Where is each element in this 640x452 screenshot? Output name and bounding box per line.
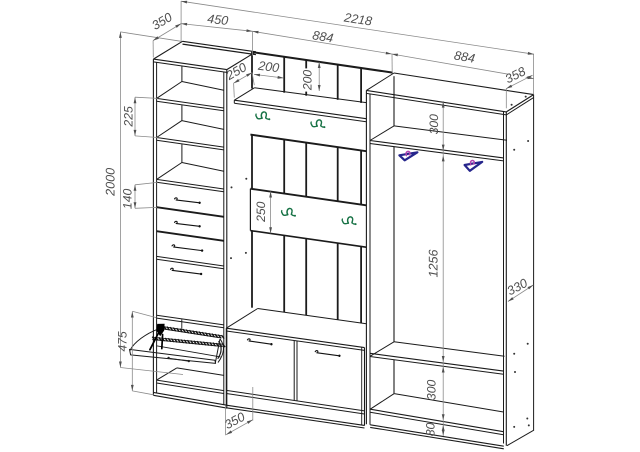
svg-text:450: 450 xyxy=(207,12,229,28)
svg-text:200: 200 xyxy=(256,59,280,76)
svg-text:2000: 2000 xyxy=(104,168,118,197)
svg-text:200: 200 xyxy=(301,70,315,92)
svg-text:225: 225 xyxy=(122,106,136,128)
svg-text:140: 140 xyxy=(121,189,135,210)
svg-text:80: 80 xyxy=(424,423,438,437)
svg-text:475: 475 xyxy=(115,331,129,352)
svg-text:250: 250 xyxy=(254,201,268,223)
svg-text:300: 300 xyxy=(425,380,439,401)
svg-text:1256: 1256 xyxy=(427,249,441,277)
svg-text:300: 300 xyxy=(427,114,441,135)
